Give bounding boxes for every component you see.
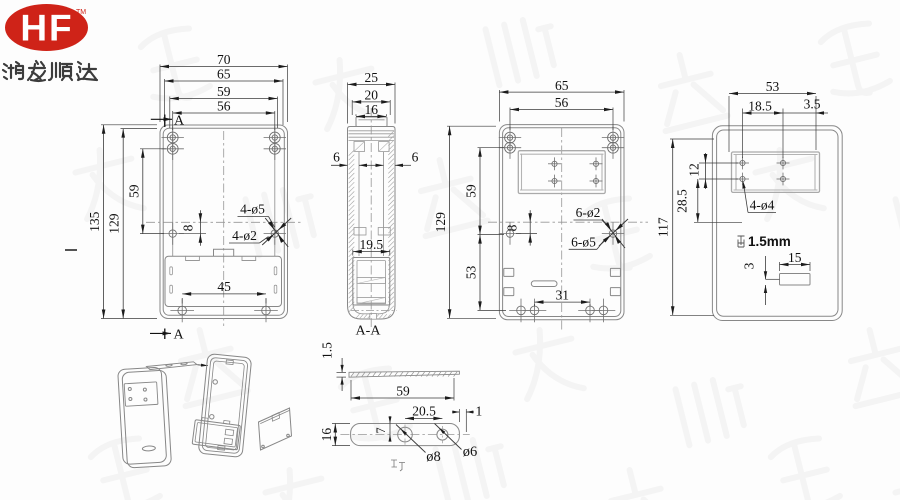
svg-text:65: 65: [555, 78, 569, 93]
svg-text:16: 16: [364, 102, 378, 117]
svg-text:59: 59: [217, 84, 231, 99]
svg-text:6: 6: [333, 150, 340, 165]
svg-text:20: 20: [364, 88, 378, 103]
svg-text:25: 25: [364, 70, 378, 85]
svg-text:56: 56: [555, 95, 569, 110]
svg-text:19.5: 19.5: [359, 237, 383, 252]
svg-text:135: 135: [87, 211, 102, 232]
svg-text:45: 45: [217, 279, 231, 294]
svg-text:6: 6: [412, 150, 419, 165]
svg-text:129: 129: [433, 212, 448, 233]
svg-text:31: 31: [555, 288, 569, 303]
svg-text:28.5: 28.5: [675, 189, 690, 213]
svg-text:70: 70: [217, 52, 231, 67]
svg-text:8: 8: [505, 224, 520, 231]
svg-text:65: 65: [217, 67, 231, 82]
svg-text:ø6: ø6: [463, 444, 478, 460]
svg-text:1.5mm: 1.5mm: [748, 234, 791, 249]
svg-text:20.5: 20.5: [412, 403, 436, 418]
svg-text:TM: TM: [76, 9, 86, 16]
svg-text:ø8: ø8: [426, 449, 441, 465]
svg-text:6-ø5: 6-ø5: [571, 235, 596, 250]
svg-text:59: 59: [396, 384, 410, 399]
svg-text:129: 129: [107, 213, 122, 234]
svg-text:117: 117: [656, 217, 671, 237]
svg-text:56: 56: [217, 99, 231, 114]
svg-text:1: 1: [476, 404, 483, 419]
svg-text:4-ø4: 4-ø4: [750, 198, 775, 213]
svg-text:4-ø5: 4-ø5: [240, 202, 265, 217]
svg-text:18.5: 18.5: [748, 99, 772, 114]
svg-text:6-ø2: 6-ø2: [576, 205, 601, 220]
svg-text:12: 12: [687, 163, 702, 177]
svg-text:15: 15: [788, 250, 802, 265]
svg-text:HF: HF: [20, 8, 73, 49]
svg-text:16: 16: [319, 428, 334, 442]
svg-text:3: 3: [742, 262, 757, 269]
svg-text:3.5: 3.5: [804, 96, 821, 111]
svg-text:59: 59: [464, 184, 479, 198]
svg-text:A: A: [174, 114, 185, 129]
svg-text:A: A: [173, 328, 184, 343]
svg-text:8: 8: [181, 224, 196, 231]
svg-text:1.5: 1.5: [320, 342, 335, 359]
svg-text:53: 53: [766, 79, 780, 94]
svg-text:A-A: A-A: [356, 324, 382, 339]
svg-text:59: 59: [126, 184, 141, 198]
svg-text:53: 53: [464, 266, 479, 280]
svg-text:4-ø2: 4-ø2: [232, 228, 257, 243]
svg-text:7: 7: [374, 427, 388, 433]
